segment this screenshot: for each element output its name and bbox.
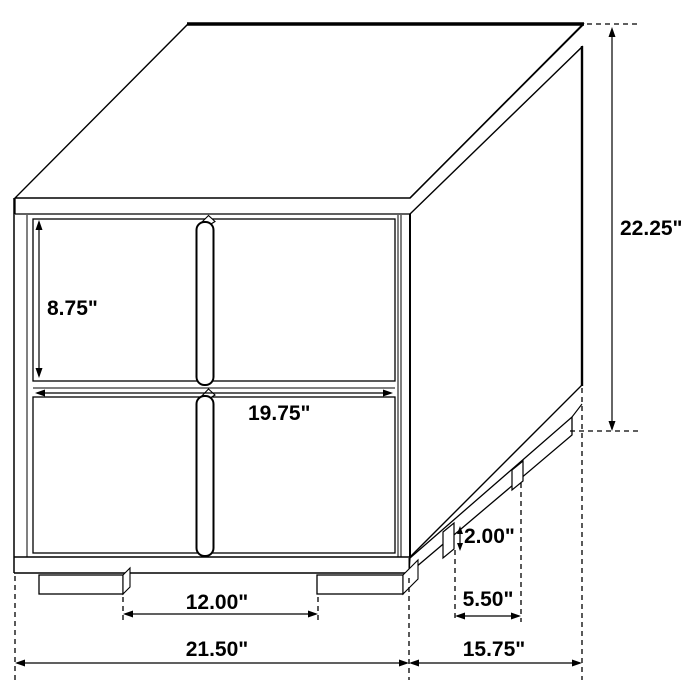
foot-front-right bbox=[317, 575, 403, 594]
handle-lower-bar bbox=[197, 396, 214, 556]
dim-label-overall-depth: 15.75" bbox=[463, 638, 526, 661]
dimension-diagram-canvas: 8.75" 19.75" 22.25" 2.00" 5.50" 12.00" bbox=[0, 0, 700, 700]
dim-label-front-feet-gap: 12.00" bbox=[186, 591, 249, 614]
dimension-foot-height: 2.00" bbox=[457, 525, 515, 551]
dim-label-drawer-height: 8.75" bbox=[47, 297, 98, 320]
nightstand-dimension-drawing: 8.75" 19.75" 22.25" 2.00" 5.50" 12.00" bbox=[0, 0, 700, 700]
handle-upper-bar bbox=[197, 222, 214, 385]
dim-label-overall-height: 22.25" bbox=[620, 217, 683, 240]
dim-label-side-feet-gap: 5.50" bbox=[463, 588, 514, 611]
dim-label-drawer-width: 19.75" bbox=[248, 402, 311, 425]
dim-label-overall-width: 21.50" bbox=[186, 638, 249, 661]
dim-label-foot-height: 2.00" bbox=[464, 525, 515, 548]
foot-front-left bbox=[39, 575, 123, 594]
